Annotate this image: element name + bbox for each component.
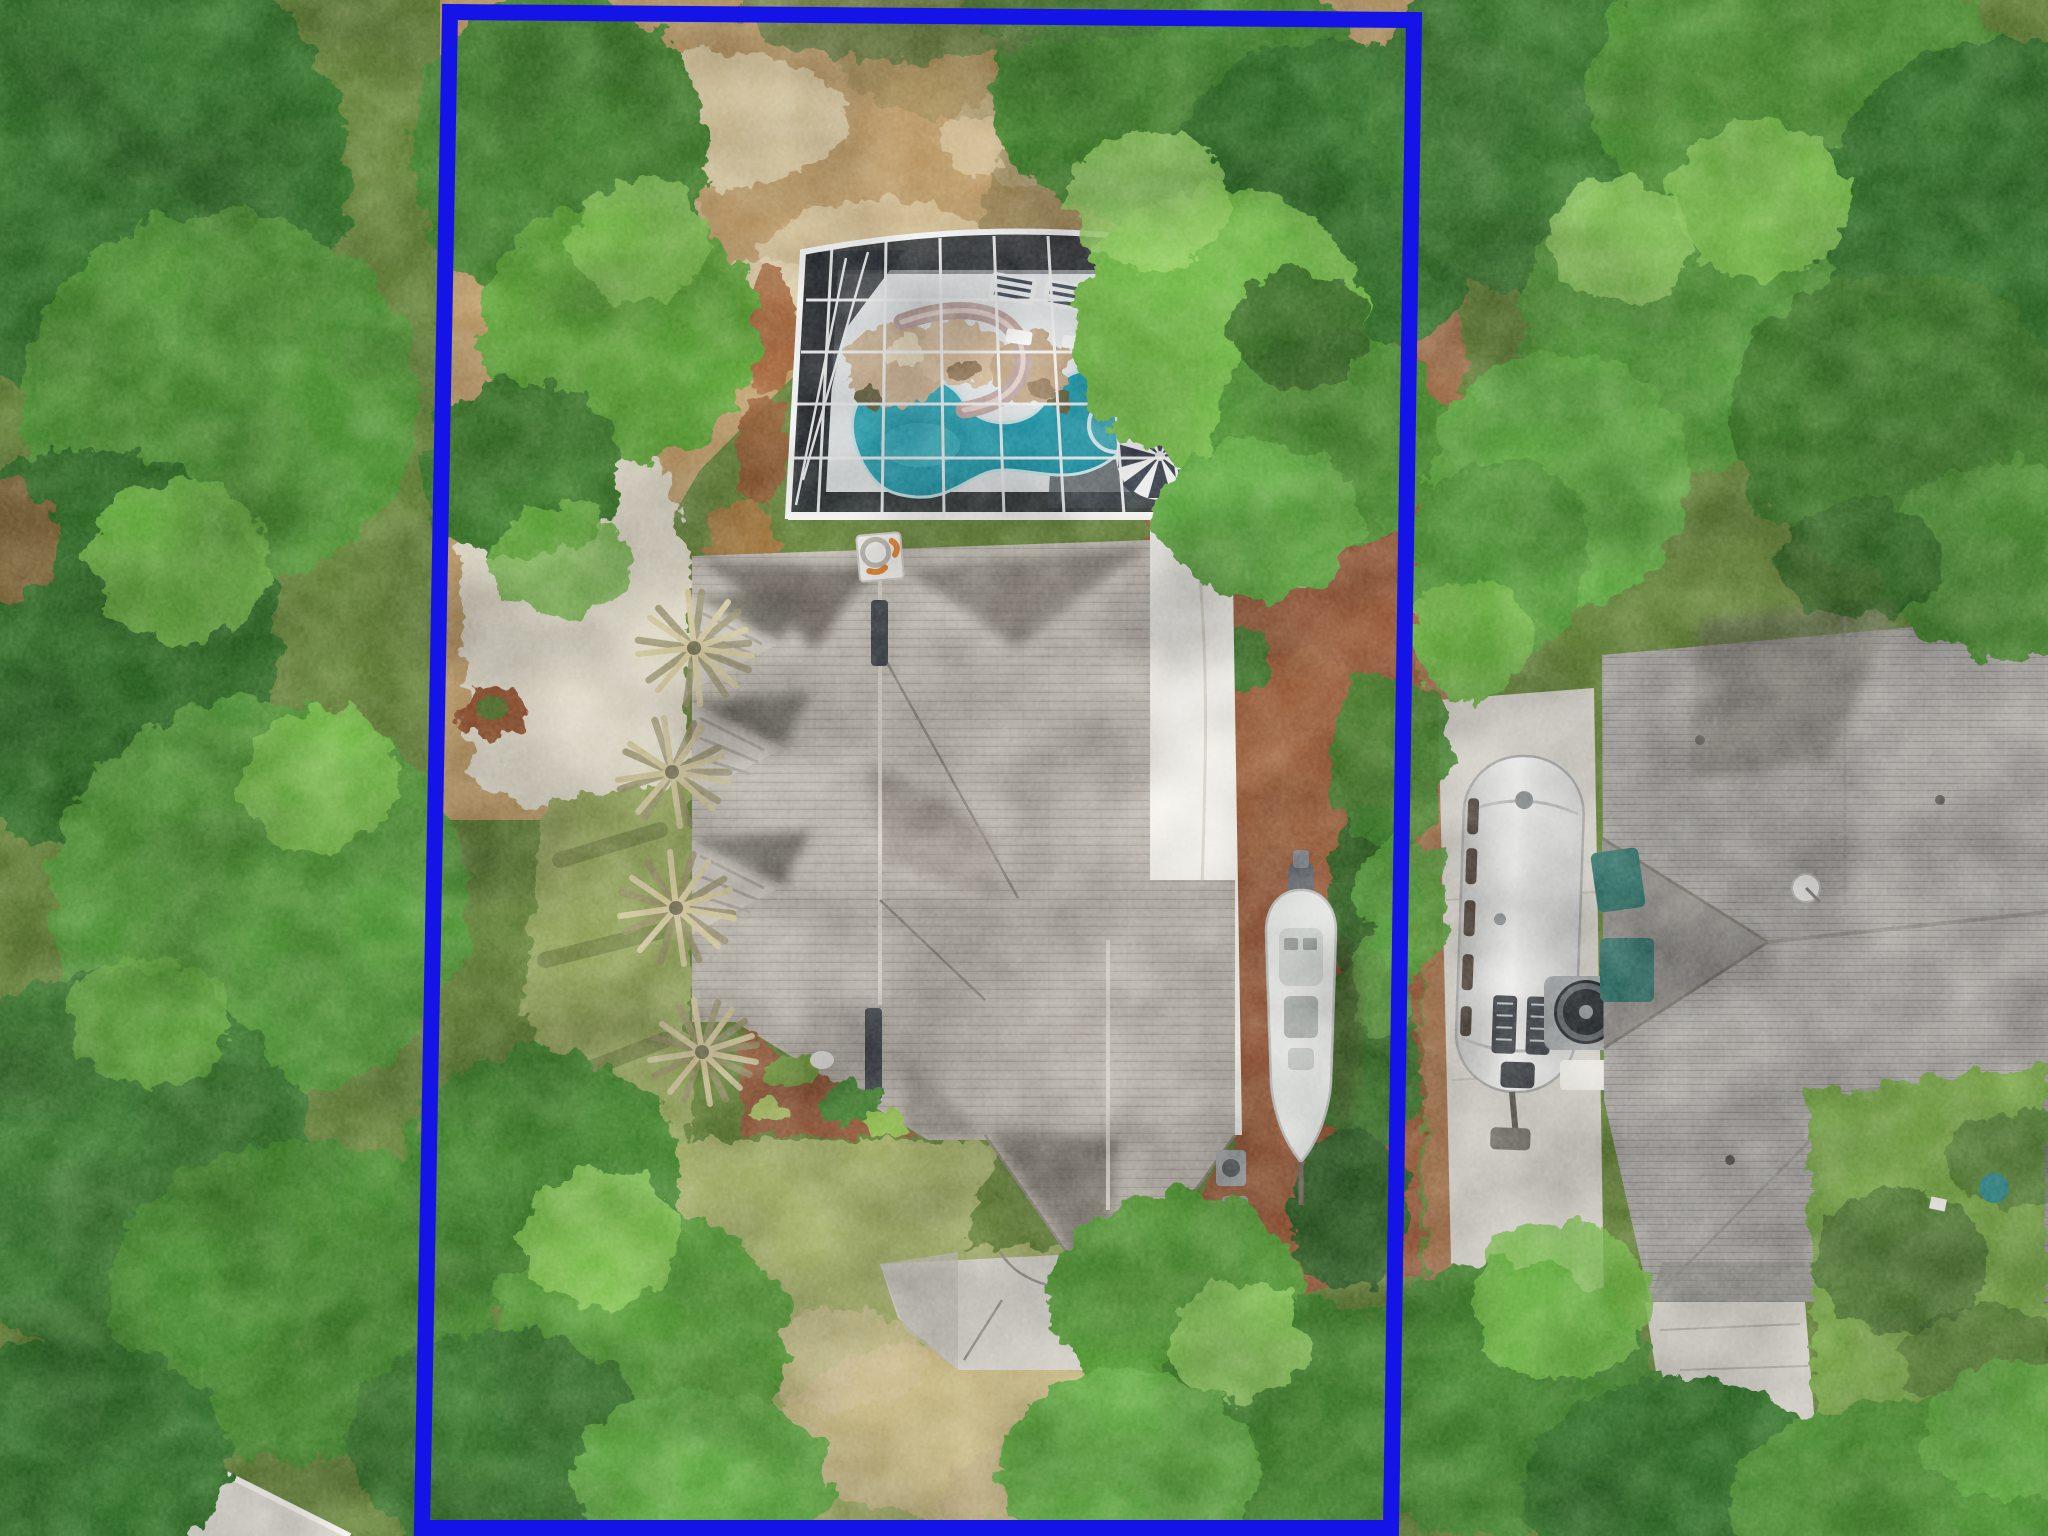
aerial-photo-canvas xyxy=(0,0,2048,1536)
fine-speckle-overlay xyxy=(0,0,2048,1536)
aerial-photo xyxy=(0,0,2048,1536)
